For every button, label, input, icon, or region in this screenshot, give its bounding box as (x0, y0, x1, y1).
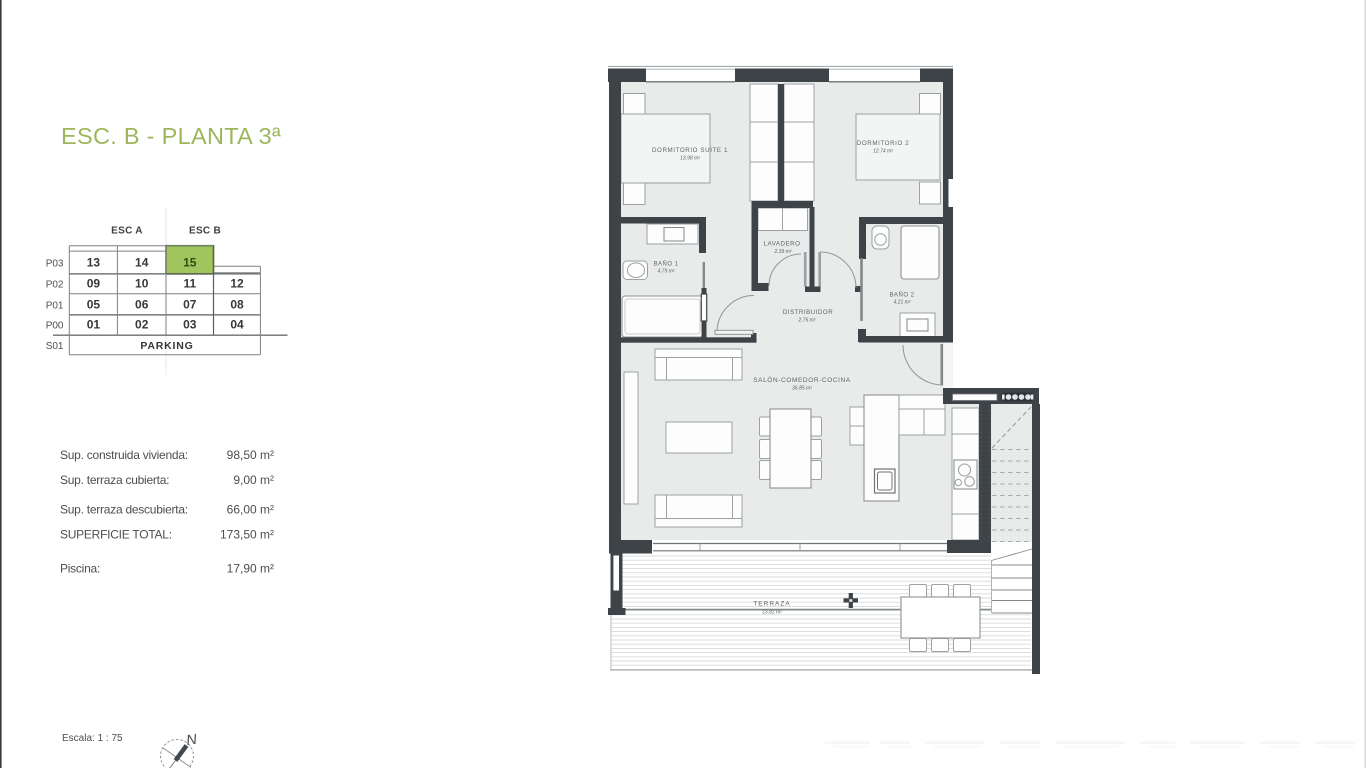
svg-text:DORMITORIO SUITE 1: DORMITORIO SUITE 1 (652, 147, 728, 154)
svg-text:BAÑO 1: BAÑO 1 (653, 261, 678, 268)
svg-text:03: 03 (183, 318, 197, 332)
svg-text:04: 04 (230, 318, 244, 332)
svg-text:12.74 m²: 12.74 m² (873, 149, 893, 155)
svg-text:12: 12 (230, 277, 244, 291)
svg-text:08: 08 (230, 298, 244, 312)
svg-text:DISTRIBUIDOR: DISTRIBUIDOR (783, 309, 833, 316)
svg-text:14: 14 (135, 256, 149, 270)
svg-text:09: 09 (87, 277, 101, 291)
svg-text:13.98 m²: 13.98 m² (680, 156, 700, 162)
svg-text:Sup. terraza descubierta:: Sup. terraza descubierta: (60, 503, 188, 517)
svg-text:Sup. construida vivienda:: Sup. construida vivienda: (60, 448, 188, 462)
svg-text:SUPERFICIE TOTAL:: SUPERFICIE TOTAL: (60, 527, 172, 541)
svg-text:Piscina:: Piscina: (60, 562, 100, 576)
svg-text:LAVADERO: LAVADERO (764, 241, 801, 248)
svg-text:2.39 m²: 2.39 m² (774, 249, 792, 255)
svg-text:66,00 m²: 66,00 m² (227, 503, 274, 517)
svg-text:P01: P01 (46, 301, 64, 312)
svg-text:DORMITORIO 2: DORMITORIO 2 (857, 140, 909, 147)
svg-text:15: 15 (183, 256, 197, 270)
svg-text:2.76 m²: 2.76 m² (798, 318, 816, 324)
svg-text:06: 06 (135, 298, 149, 312)
svg-text:23.82 m²: 23.82 m² (762, 610, 782, 616)
svg-text:01: 01 (87, 318, 101, 332)
svg-text:N: N (185, 732, 198, 749)
svg-text:173,50 m²: 173,50 m² (220, 527, 274, 541)
svg-text:PARKING: PARKING (140, 340, 193, 352)
svg-text:ESC A: ESC A (111, 226, 143, 237)
svg-text:10: 10 (135, 277, 149, 291)
svg-text:ESC. B - PLANTA 3ª: ESC. B - PLANTA 3ª (61, 123, 281, 149)
svg-text:17,90 m²: 17,90 m² (227, 562, 274, 576)
svg-text:13: 13 (87, 256, 101, 270)
svg-text:98,50 m²: 98,50 m² (227, 448, 274, 462)
svg-text:P00: P00 (46, 321, 64, 332)
svg-text:Escala: 1 : 75: Escala: 1 : 75 (62, 733, 123, 744)
svg-text:02: 02 (135, 318, 149, 332)
svg-text:36.85 m²: 36.85 m² (792, 386, 812, 392)
svg-text:07: 07 (183, 298, 197, 312)
svg-text:4.21 m²: 4.21 m² (894, 300, 911, 306)
svg-text:P02: P02 (46, 280, 64, 291)
svg-text:TERRAZA: TERRAZA (753, 601, 790, 608)
svg-text:4.79 m²: 4.79 m² (658, 269, 675, 275)
svg-text:Sup. terraza cubierta:: Sup. terraza cubierta: (60, 473, 169, 487)
svg-text:S01: S01 (46, 341, 64, 352)
svg-text:11: 11 (183, 277, 196, 291)
svg-text:05: 05 (87, 298, 101, 312)
svg-text:P03: P03 (46, 259, 64, 270)
svg-text:ESC B: ESC B (189, 226, 221, 237)
svg-text:9,00 m²: 9,00 m² (233, 473, 274, 487)
svg-text:SALÓN-COMEDOR-COCINA: SALÓN-COMEDOR-COCINA (753, 375, 851, 384)
svg-text:BAÑO 2: BAÑO 2 (889, 292, 914, 299)
